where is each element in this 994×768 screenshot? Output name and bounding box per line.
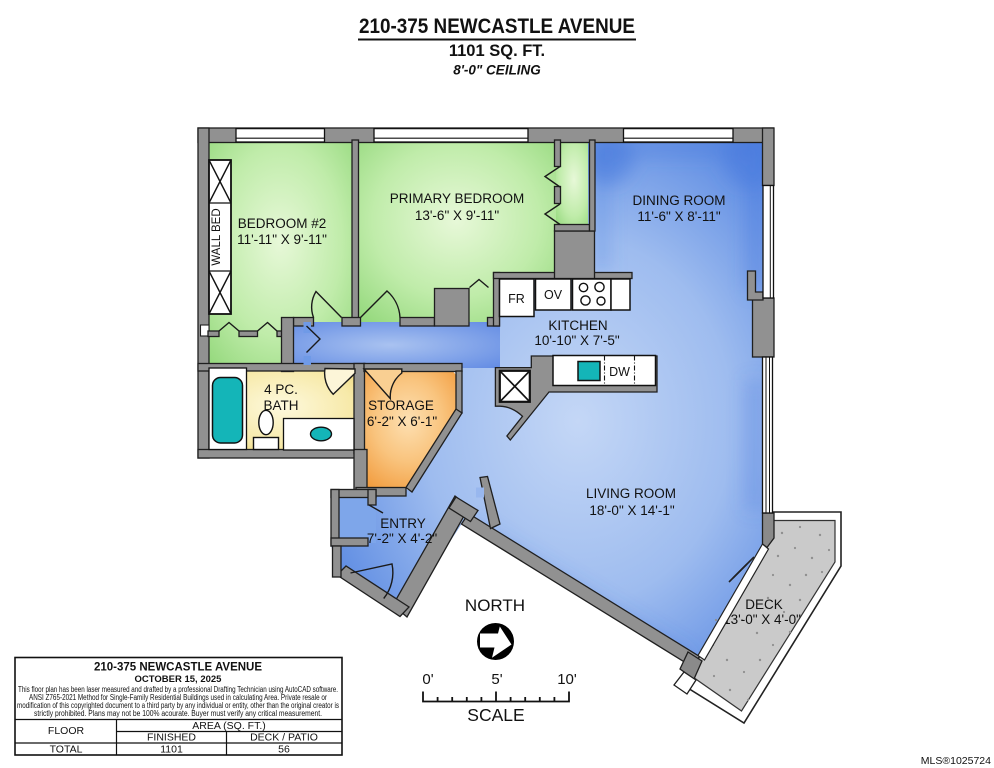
svg-text:STORAGE: STORAGE: [368, 398, 434, 413]
svg-text:TOTAL: TOTAL: [50, 744, 83, 756]
svg-text:0': 0': [422, 671, 433, 688]
svg-text:NORTH: NORTH: [465, 596, 525, 615]
svg-text:5': 5': [491, 671, 502, 688]
svg-text:1101: 1101: [160, 744, 183, 756]
svg-text:SCALE: SCALE: [467, 705, 524, 725]
svg-text:56: 56: [278, 744, 290, 756]
svg-text:strictly prohibited. Plans may: strictly prohibited. Plans may not be 10…: [34, 709, 322, 718]
svg-text:FR: FR: [508, 292, 525, 306]
svg-text:210-375 NEWCASTLE AVENUE: 210-375 NEWCASTLE AVENUE: [359, 14, 635, 38]
svg-text:10': 10': [557, 671, 577, 688]
svg-text:LIVING ROOM: LIVING ROOM: [586, 486, 676, 501]
svg-text:18'-0" X 14'-1": 18'-0" X 14'-1": [589, 503, 674, 518]
svg-text:10'-10" X 7'-5": 10'-10" X 7'-5": [534, 333, 619, 348]
svg-text:AREA (SQ. FT.): AREA (SQ. FT.): [192, 720, 266, 732]
svg-text:13'-0" X 4'-0": 13'-0" X 4'-0": [723, 612, 801, 627]
svg-text:DINING ROOM: DINING ROOM: [633, 193, 726, 208]
svg-text:1101 SQ. FT.: 1101 SQ. FT.: [449, 42, 545, 60]
svg-text:6'-2" X 6'-1": 6'-2" X 6'-1": [367, 414, 437, 429]
svg-text:210-375 NEWCASTLE AVENUE: 210-375 NEWCASTLE AVENUE: [94, 662, 262, 674]
svg-text:13'-6" X 9'-11": 13'-6" X 9'-11": [415, 208, 499, 223]
svg-text:7'-2" X 4'-2": 7'-2" X 4'-2": [367, 531, 437, 546]
svg-text:BEDROOM #2: BEDROOM #2: [238, 216, 327, 231]
svg-text:WALL BED: WALL BED: [211, 208, 223, 265]
svg-text:DECK: DECK: [745, 597, 783, 612]
svg-text:11'-11" X 9'-11": 11'-11" X 9'-11": [237, 232, 327, 247]
svg-text:MLS®1025724: MLS®1025724: [921, 755, 991, 767]
svg-text:ENTRY: ENTRY: [380, 516, 426, 531]
svg-text:8'-0" CEILING: 8'-0" CEILING: [453, 63, 541, 78]
svg-text:KITCHEN: KITCHEN: [548, 318, 607, 333]
svg-text:BATH: BATH: [263, 398, 298, 413]
svg-text:OV: OV: [544, 288, 563, 302]
svg-text:FLOOR: FLOOR: [48, 725, 85, 737]
svg-text:11'-6" X 8'-11": 11'-6" X 8'-11": [637, 209, 720, 224]
svg-text:DW: DW: [609, 365, 630, 379]
svg-text:PRIMARY BEDROOM: PRIMARY BEDROOM: [390, 191, 525, 206]
svg-text:DECK / PATIO: DECK / PATIO: [250, 732, 318, 744]
svg-text:FINISHED: FINISHED: [147, 732, 196, 744]
svg-text:4 PC.: 4 PC.: [264, 382, 298, 397]
svg-text:OCTOBER 15, 2025: OCTOBER 15, 2025: [135, 674, 223, 685]
